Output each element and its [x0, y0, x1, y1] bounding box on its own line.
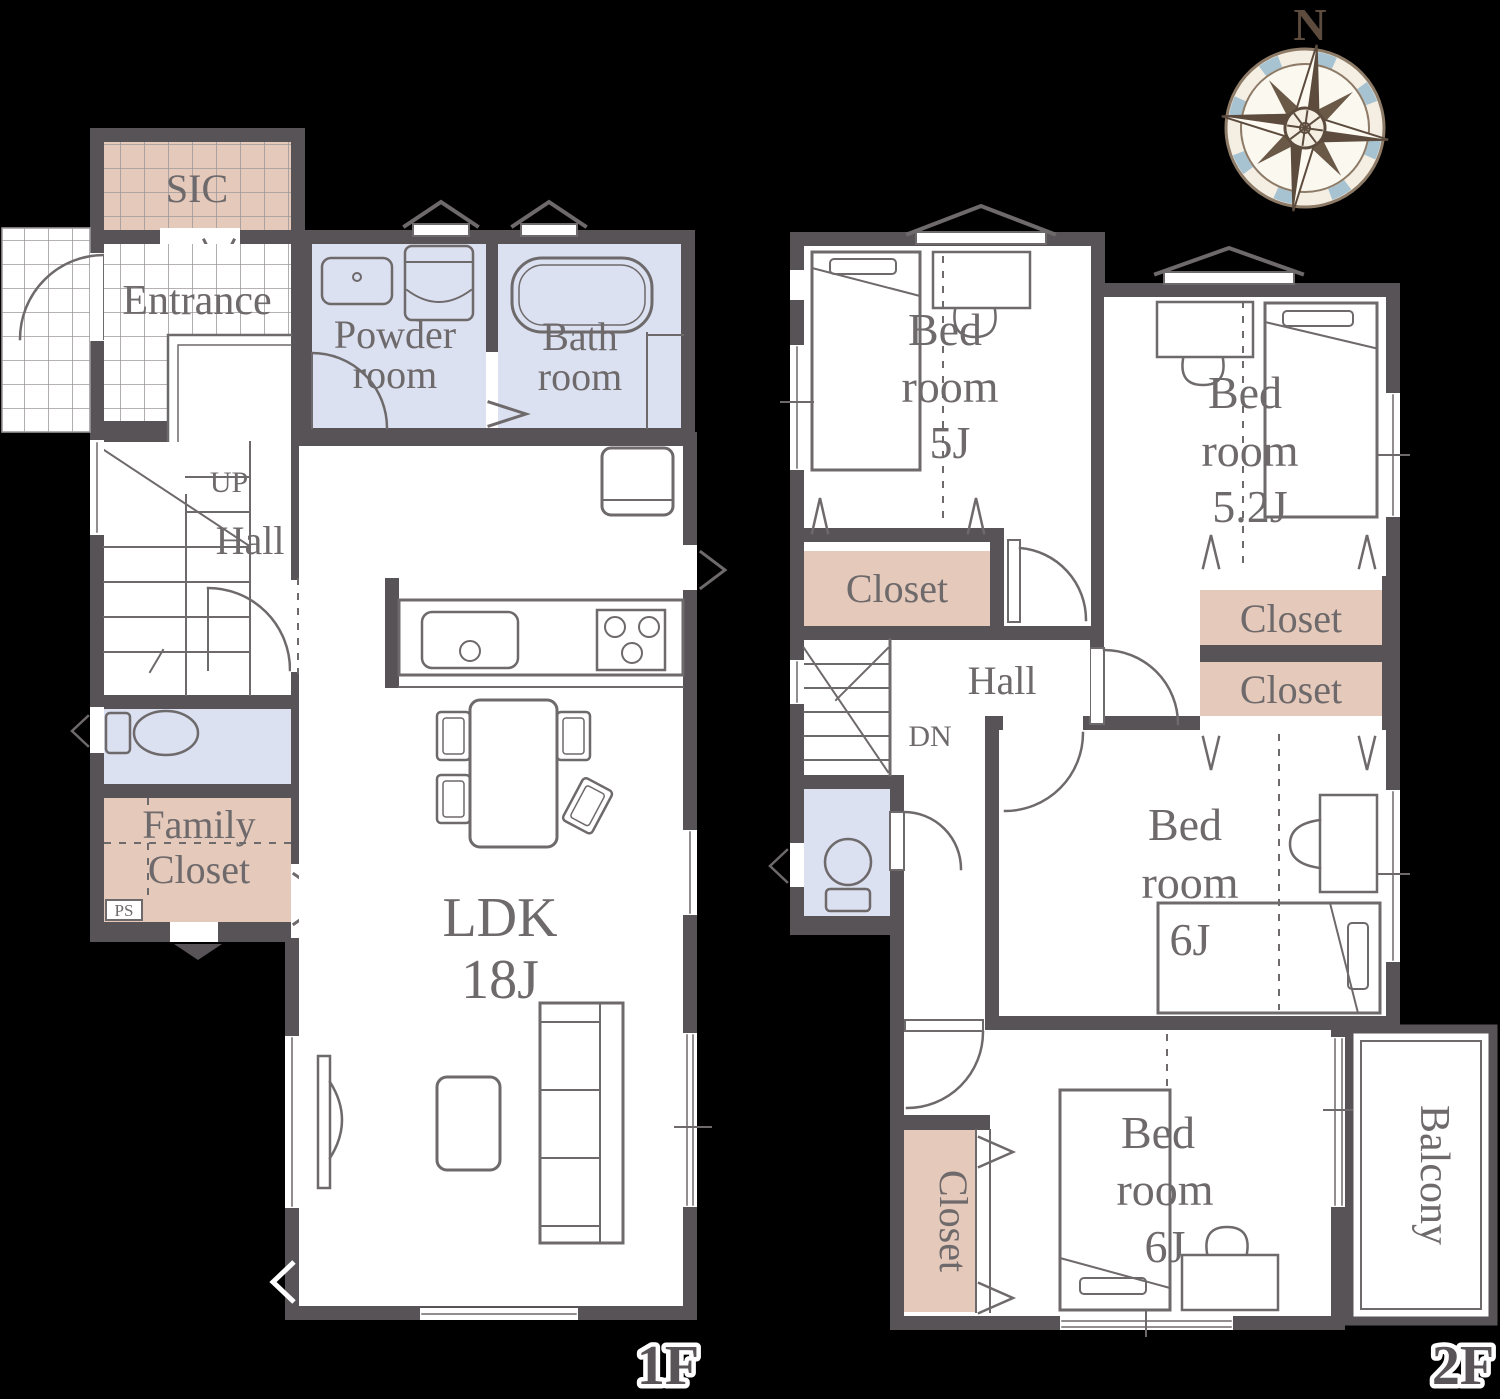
family-closet-label-1: Family — [142, 802, 255, 847]
bedroom6j-bot-label-2: room — [1116, 1164, 1213, 1215]
bedroom5j-label-3: 5J — [930, 417, 971, 468]
dn-label: DN — [908, 720, 951, 753]
bedroom6j-bot-label-1: Bed — [1121, 1107, 1195, 1158]
powder-label-2: room — [353, 352, 437, 397]
sic-label: SIC — [166, 166, 228, 211]
closet52b-label: Closet — [1240, 667, 1342, 712]
bedroom52j-label-2: room — [1201, 425, 1298, 476]
room-bedroom-6j-bottom: Closet Bed room 6J — [904, 1016, 1331, 1336]
room-bedroom-5j: Bed room 5J Closet — [781, 206, 1091, 626]
bedroom6j-mid-label-3: 6J — [1170, 914, 1211, 965]
bedroom6j-mid-label-2: room — [1141, 857, 1238, 908]
floor2-label: 2F — [1432, 1335, 1494, 1397]
floor1-rooms: SIC Entrance Powder room — [2, 142, 725, 1397]
closet6j-label: Closet — [931, 1170, 976, 1272]
hall2f-label: Hall — [968, 658, 1037, 703]
floor-plan-svg: SIC Entrance Powder room — [0, 0, 1500, 1399]
arrow-right-icon — [701, 552, 725, 588]
balcony-label: Balcony — [1411, 1105, 1457, 1245]
window — [683, 1033, 697, 1207]
bedroom5j-label-1: Bed — [908, 304, 982, 355]
ps-label: PS — [115, 901, 134, 920]
up-label: UP — [210, 466, 248, 499]
porch — [2, 228, 104, 432]
bath-label-2: room — [538, 354, 622, 399]
closet5j-label: Closet — [846, 566, 948, 611]
room-toilet-1f — [72, 707, 291, 784]
floor1-label: 1F — [637, 1335, 699, 1397]
bedroom5j-label-2: room — [901, 361, 998, 412]
room-ldk: LDK 18J — [273, 446, 725, 1320]
window — [790, 843, 804, 887]
ldk-label-1: LDK — [442, 887, 557, 949]
room-hall-1f: UP Hall — [90, 440, 305, 695]
compass-rose: N — [1209, 0, 1401, 224]
balcony: Balcony — [1324, 1029, 1493, 1321]
north-label: N — [1293, 0, 1326, 50]
floor2-rooms: Bed room 5J Closet — [770, 206, 1494, 1397]
arrow-down-icon — [174, 944, 222, 960]
bedroom6j-mid-label-1: Bed — [1148, 799, 1222, 850]
floor-plan-page: SIC Entrance Powder room — [0, 0, 1500, 1399]
room-bedroom-6j-mid: Bed room 6J — [999, 716, 1409, 1016]
room-bath: Bath room — [486, 244, 683, 428]
window-shutter-icon — [1156, 248, 1302, 274]
bath-label-1: Bath — [542, 314, 618, 359]
bedroom6j-bot-label-3: 6J — [1145, 1221, 1186, 1272]
powder-label-1: Powder — [334, 312, 456, 357]
bedroom52j-label-1: Bed — [1208, 367, 1282, 418]
entrance-label: Entrance — [122, 278, 271, 324]
window — [790, 270, 804, 300]
ldk-label-2: 18J — [461, 949, 539, 1011]
bedroom52j-label-3: 5.2J — [1212, 481, 1287, 532]
window — [683, 545, 697, 590]
window-shutter-icon — [908, 206, 1054, 234]
closet-52b: Closet — [1200, 662, 1382, 730]
window — [1331, 1037, 1345, 1207]
family-closet-label-2: Closet — [148, 847, 250, 892]
hall1f-label: Hall — [216, 518, 285, 563]
room-powder: Powder room — [312, 244, 486, 428]
room-entrance: Entrance — [104, 244, 291, 442]
window — [90, 707, 104, 753]
arrow-left-icon — [72, 716, 88, 746]
arrow-left-icon — [770, 850, 787, 882]
closet52a-label: Closet — [1240, 596, 1342, 641]
